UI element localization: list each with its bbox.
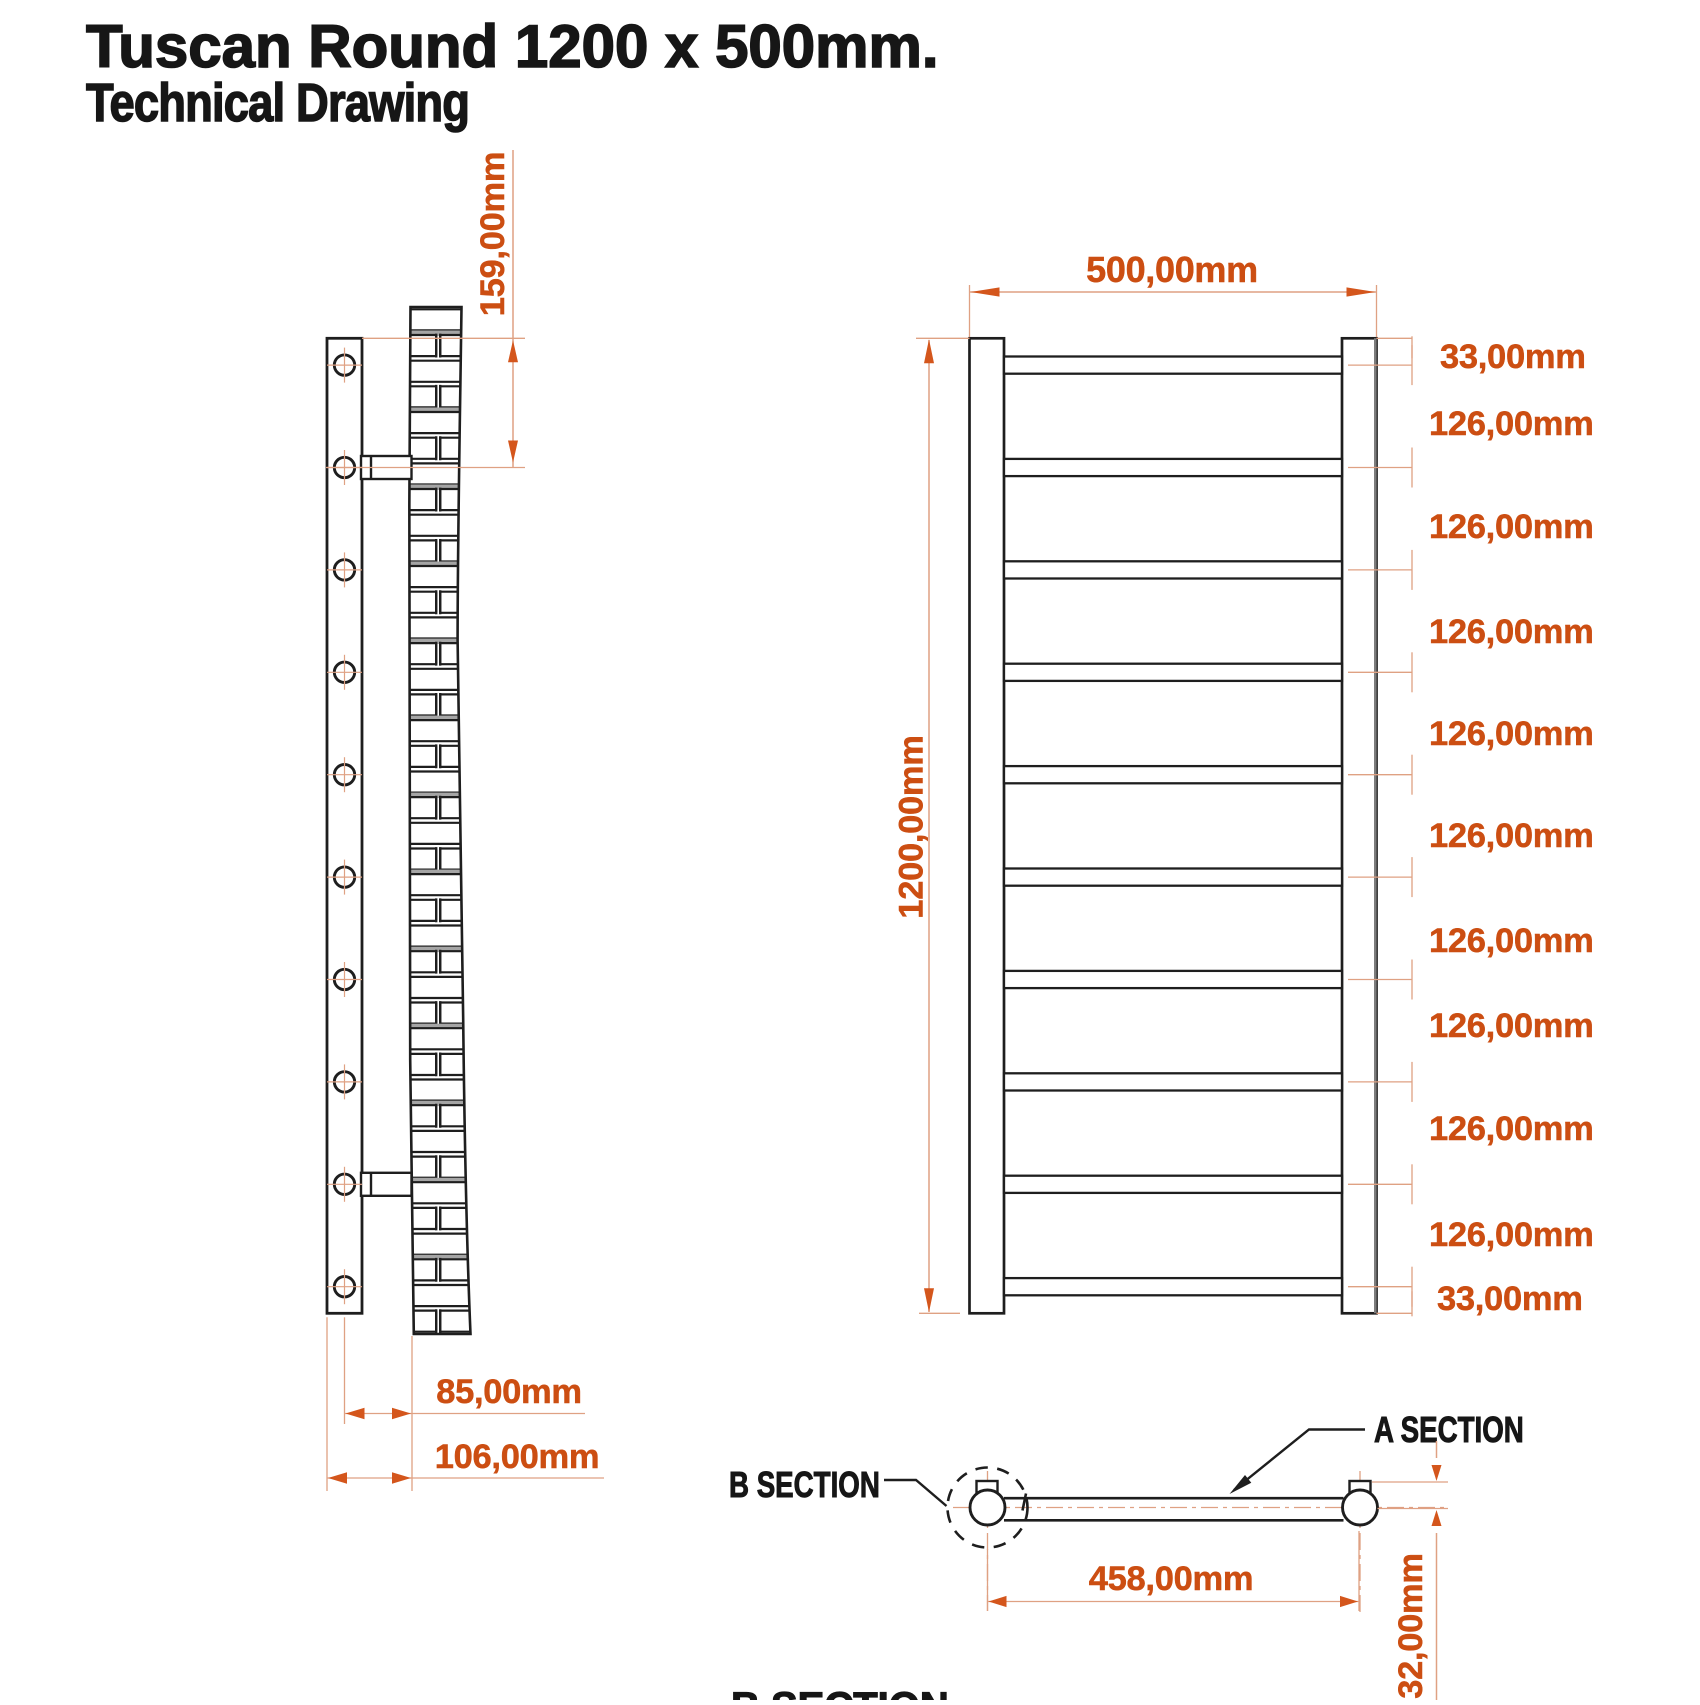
svg-text:126,00mm: 126,00mm [1429,817,1593,855]
svg-text:A SECTION: A SECTION [1374,1410,1524,1450]
svg-text:126,00mm: 126,00mm [1429,508,1593,546]
svg-text:33,00mm: 33,00mm [1440,338,1586,376]
svg-text:85,00mm: 85,00mm [436,1373,582,1411]
svg-text:B SECTION: B SECTION [729,1465,880,1505]
svg-text:32,00mm: 32,00mm [1392,1553,1430,1699]
svg-text:126,00mm: 126,00mm [1429,715,1593,753]
svg-text:Tuscan Round 1200 x 500mm.: Tuscan Round 1200 x 500mm. [86,13,939,80]
svg-text:106,00mm: 106,00mm [435,1438,599,1476]
svg-text:Technical Drawing: Technical Drawing [86,72,469,133]
svg-text:126,00mm: 126,00mm [1429,613,1593,651]
svg-text:126,00mm: 126,00mm [1429,405,1593,443]
svg-text:159,00mm: 159,00mm [474,152,512,316]
svg-text:126,00mm: 126,00mm [1429,1110,1593,1148]
svg-text:126,00mm: 126,00mm [1429,1216,1593,1254]
svg-text:1200,00mm: 1200,00mm [893,735,931,918]
svg-text:B SECTION: B SECTION [731,1685,949,1700]
svg-text:500,00mm: 500,00mm [1086,249,1258,290]
svg-text:458,00mm: 458,00mm [1089,1560,1253,1598]
svg-text:33,00mm: 33,00mm [1437,1280,1583,1318]
svg-text:126,00mm: 126,00mm [1429,1007,1593,1045]
svg-text:126,00mm: 126,00mm [1429,922,1593,960]
